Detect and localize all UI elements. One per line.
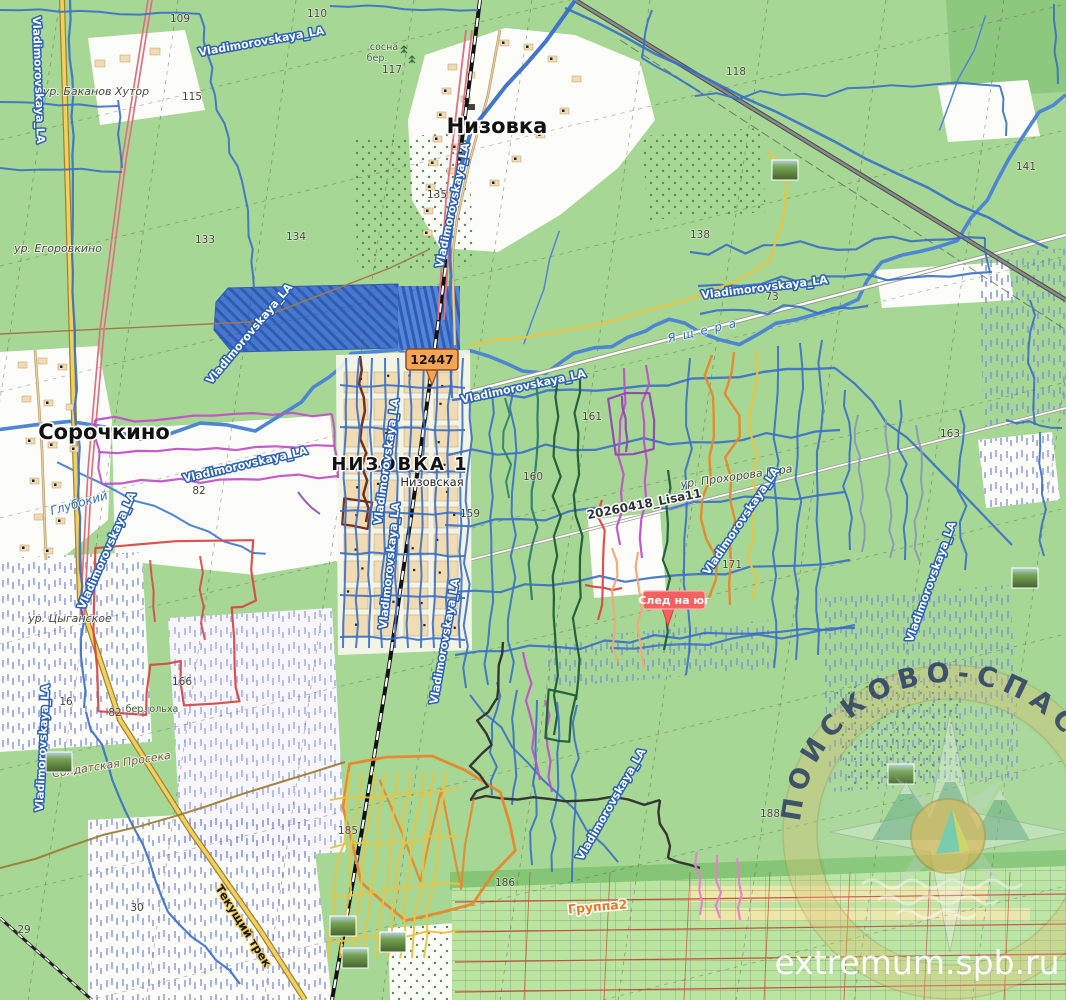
house-dot — [454, 627, 456, 629]
quarter-number: 134 — [286, 231, 306, 243]
photo-thumbnail[interactable] — [46, 752, 72, 772]
building-block — [572, 76, 581, 82]
photo-thumbnail[interactable] — [330, 916, 356, 936]
building-block — [434, 534, 458, 555]
quarter-number: 133 — [195, 234, 215, 246]
quarter-number: 185 — [338, 825, 358, 837]
house-dot — [28, 440, 31, 443]
house-dot — [435, 138, 438, 141]
quarter-number: 141 — [1016, 161, 1036, 173]
house-dot — [453, 514, 455, 516]
photo-thumbnail[interactable] — [1012, 568, 1038, 588]
house-dot — [412, 547, 414, 549]
house-dot — [439, 114, 442, 117]
house-dot — [425, 232, 428, 235]
quarter-number: 73 — [765, 291, 778, 303]
quarter-number: 82 — [192, 485, 205, 497]
house-dot — [439, 403, 441, 405]
house-dot — [439, 571, 441, 573]
quarter-number: 186 — [495, 877, 515, 889]
house-dot — [361, 567, 363, 569]
house-dot — [46, 402, 49, 405]
house-dot — [426, 210, 429, 213]
house-dot — [514, 158, 517, 161]
quarter-number: 118 — [726, 66, 746, 78]
building-block — [344, 561, 368, 582]
quarter-number: 117 — [382, 64, 402, 76]
quarter-number: 171 — [722, 559, 742, 571]
settlement-label: НИЗОВКА 1 — [331, 454, 468, 475]
house-dot — [502, 42, 505, 45]
quarter-number: 29 — [17, 924, 30, 936]
landcover-area — [588, 512, 666, 598]
terrain-label: ур. Цыганское — [27, 612, 112, 625]
quarter-number: 160 — [523, 471, 543, 483]
house-dot — [32, 480, 35, 483]
house-dot — [58, 520, 61, 523]
building-block — [18, 362, 27, 368]
terrain-label: ур. Егоровкино — [13, 242, 102, 255]
waypoint-label: 12447 — [410, 352, 454, 367]
house-dot — [54, 484, 57, 487]
quarter-number: 161 — [582, 411, 602, 423]
house-dot — [72, 448, 75, 451]
terrain-label: сосна — [370, 42, 398, 53]
quarter-number: 115 — [182, 91, 202, 103]
landcover-area — [978, 432, 1060, 508]
quarter-number: 159 — [460, 508, 480, 520]
settlement-label: Низовская — [400, 475, 463, 489]
quarter-number: 138 — [690, 229, 710, 241]
quarter-number: 16 — [59, 696, 73, 708]
quarter-number: 163 — [940, 428, 960, 440]
note-flag-label: След на юг — [638, 594, 710, 607]
quarter-number: 30 — [130, 902, 143, 914]
quarter-number: 110 — [307, 8, 327, 20]
map-svg: НизовкаСорочкиноНИЗОВКА 1Низовскаяур. Ба… — [0, 0, 1066, 1000]
house-dot — [444, 90, 447, 93]
building-block — [150, 48, 160, 55]
house-dot — [22, 547, 25, 550]
building-block — [344, 426, 368, 447]
landcover-area — [642, 128, 766, 220]
photo-thumbnail[interactable] — [772, 160, 798, 180]
house-dot — [526, 46, 529, 49]
building-block — [22, 396, 31, 402]
house-dot — [387, 375, 389, 377]
quarter-number: 82 — [108, 707, 121, 719]
house-dot — [347, 590, 349, 592]
photo-thumbnail[interactable] — [380, 932, 406, 952]
house-dot — [453, 146, 456, 149]
landcover-area — [0, 552, 152, 752]
terrain-label: ур. Баканов Хутор — [42, 85, 149, 98]
house-dot — [423, 624, 425, 626]
building-block — [404, 507, 428, 528]
house-dot — [60, 366, 63, 369]
map-canvas[interactable]: НизовкаСорочкиноНИЗОВКА 1Низовскаяур. Ба… — [0, 0, 1066, 1000]
house-dot — [562, 110, 565, 113]
building-block — [38, 358, 47, 364]
house-dot — [392, 601, 394, 603]
building-block — [34, 514, 43, 520]
house-dot — [492, 182, 495, 185]
quarter-number: 135 — [427, 189, 447, 201]
building-block — [434, 426, 458, 447]
house-dot — [413, 569, 415, 571]
house-dot — [428, 186, 431, 189]
house-dot — [438, 441, 440, 443]
building-block — [95, 60, 105, 67]
building-block — [120, 55, 130, 62]
attribution-text: extremum.spb.ru — [774, 943, 1059, 982]
house-dot — [431, 162, 434, 165]
landcover-area — [168, 608, 346, 862]
terrain-label: бер. ольха — [126, 704, 179, 715]
landcover-area — [88, 30, 205, 125]
settlement-label: Низовка — [447, 114, 548, 138]
quarter-number: 109 — [170, 13, 190, 25]
building-block — [448, 64, 457, 70]
house-dot — [46, 550, 49, 553]
house-dot — [550, 58, 553, 61]
quarter-number: 166 — [172, 676, 192, 688]
settlement-label: Сорочкино — [38, 420, 170, 444]
photo-thumbnail[interactable] — [342, 948, 368, 968]
terrain-label: бер. — [367, 53, 388, 64]
